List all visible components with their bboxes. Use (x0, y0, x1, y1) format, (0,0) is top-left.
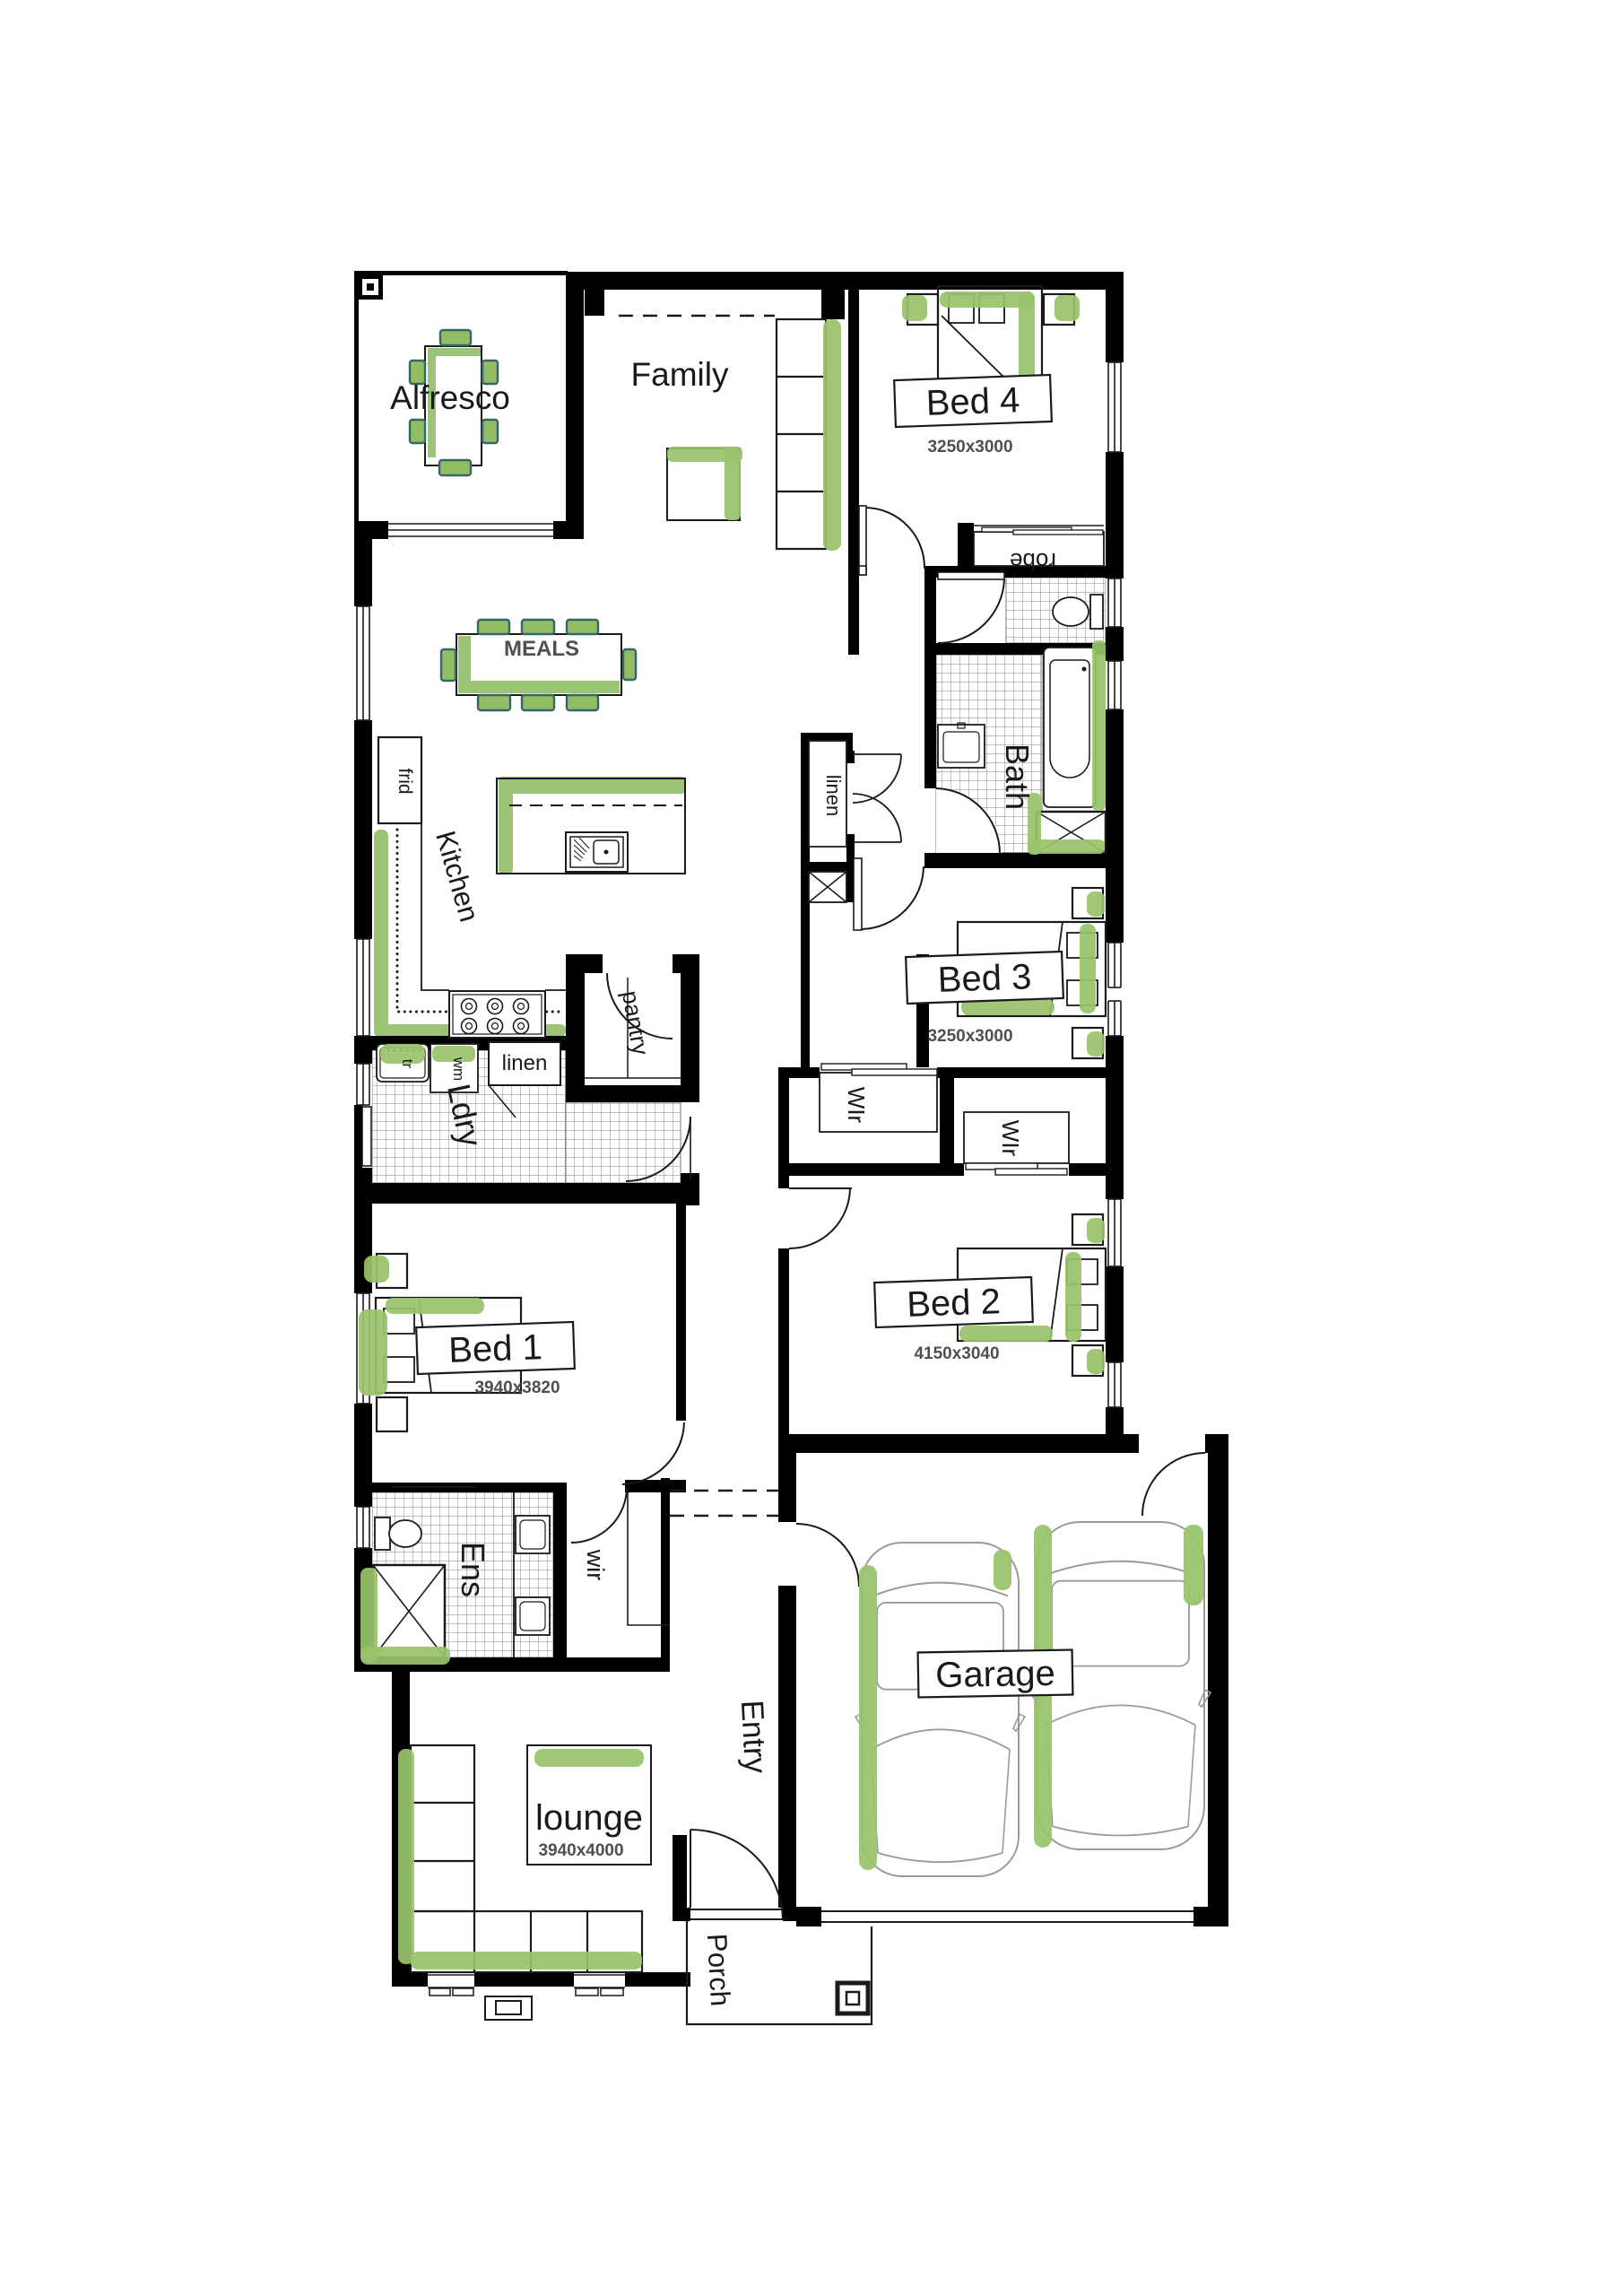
svg-text:Garage: Garage (935, 1654, 1055, 1695)
svg-text:3940x4000: 3940x4000 (538, 1841, 623, 1860)
svg-text:4150x3040: 4150x3040 (914, 1344, 999, 1363)
svg-text:3940x3820: 3940x3820 (474, 1378, 560, 1397)
svg-text:Bed 3: Bed 3 (937, 957, 1032, 1000)
svg-text:wm: wm (450, 1057, 467, 1081)
svg-text:Porch: Porch (701, 1933, 736, 2007)
svg-text:Bed 4: Bed 4 (925, 380, 1020, 423)
svg-text:frid: frid (395, 768, 415, 794)
svg-text:MEALS: MEALS (504, 637, 579, 661)
svg-text:linen: linen (822, 775, 845, 816)
svg-text:WIr: WIr (843, 1087, 870, 1124)
svg-text:Bed 2: Bed 2 (907, 1282, 1002, 1325)
svg-text:WIr: WIr (997, 1120, 1024, 1157)
svg-text:Bath: Bath (999, 744, 1036, 810)
svg-text:tr: tr (399, 1059, 416, 1069)
svg-text:lounge: lounge (535, 1798, 643, 1838)
svg-text:Family: Family (631, 356, 729, 393)
svg-text:3250x3000: 3250x3000 (927, 1027, 1012, 1046)
svg-text:3250x3000: 3250x3000 (927, 438, 1012, 457)
svg-text:Entry: Entry (734, 1700, 773, 1775)
svg-text:Alfresco: Alfresco (390, 379, 510, 416)
svg-text:Ens: Ens (455, 1542, 491, 1597)
svg-text:linen: linen (502, 1051, 548, 1075)
svg-text:robe: robe (1010, 548, 1056, 575)
svg-text:wir: wir (582, 1549, 609, 1581)
svg-text:Bed 1: Bed 1 (448, 1327, 543, 1370)
